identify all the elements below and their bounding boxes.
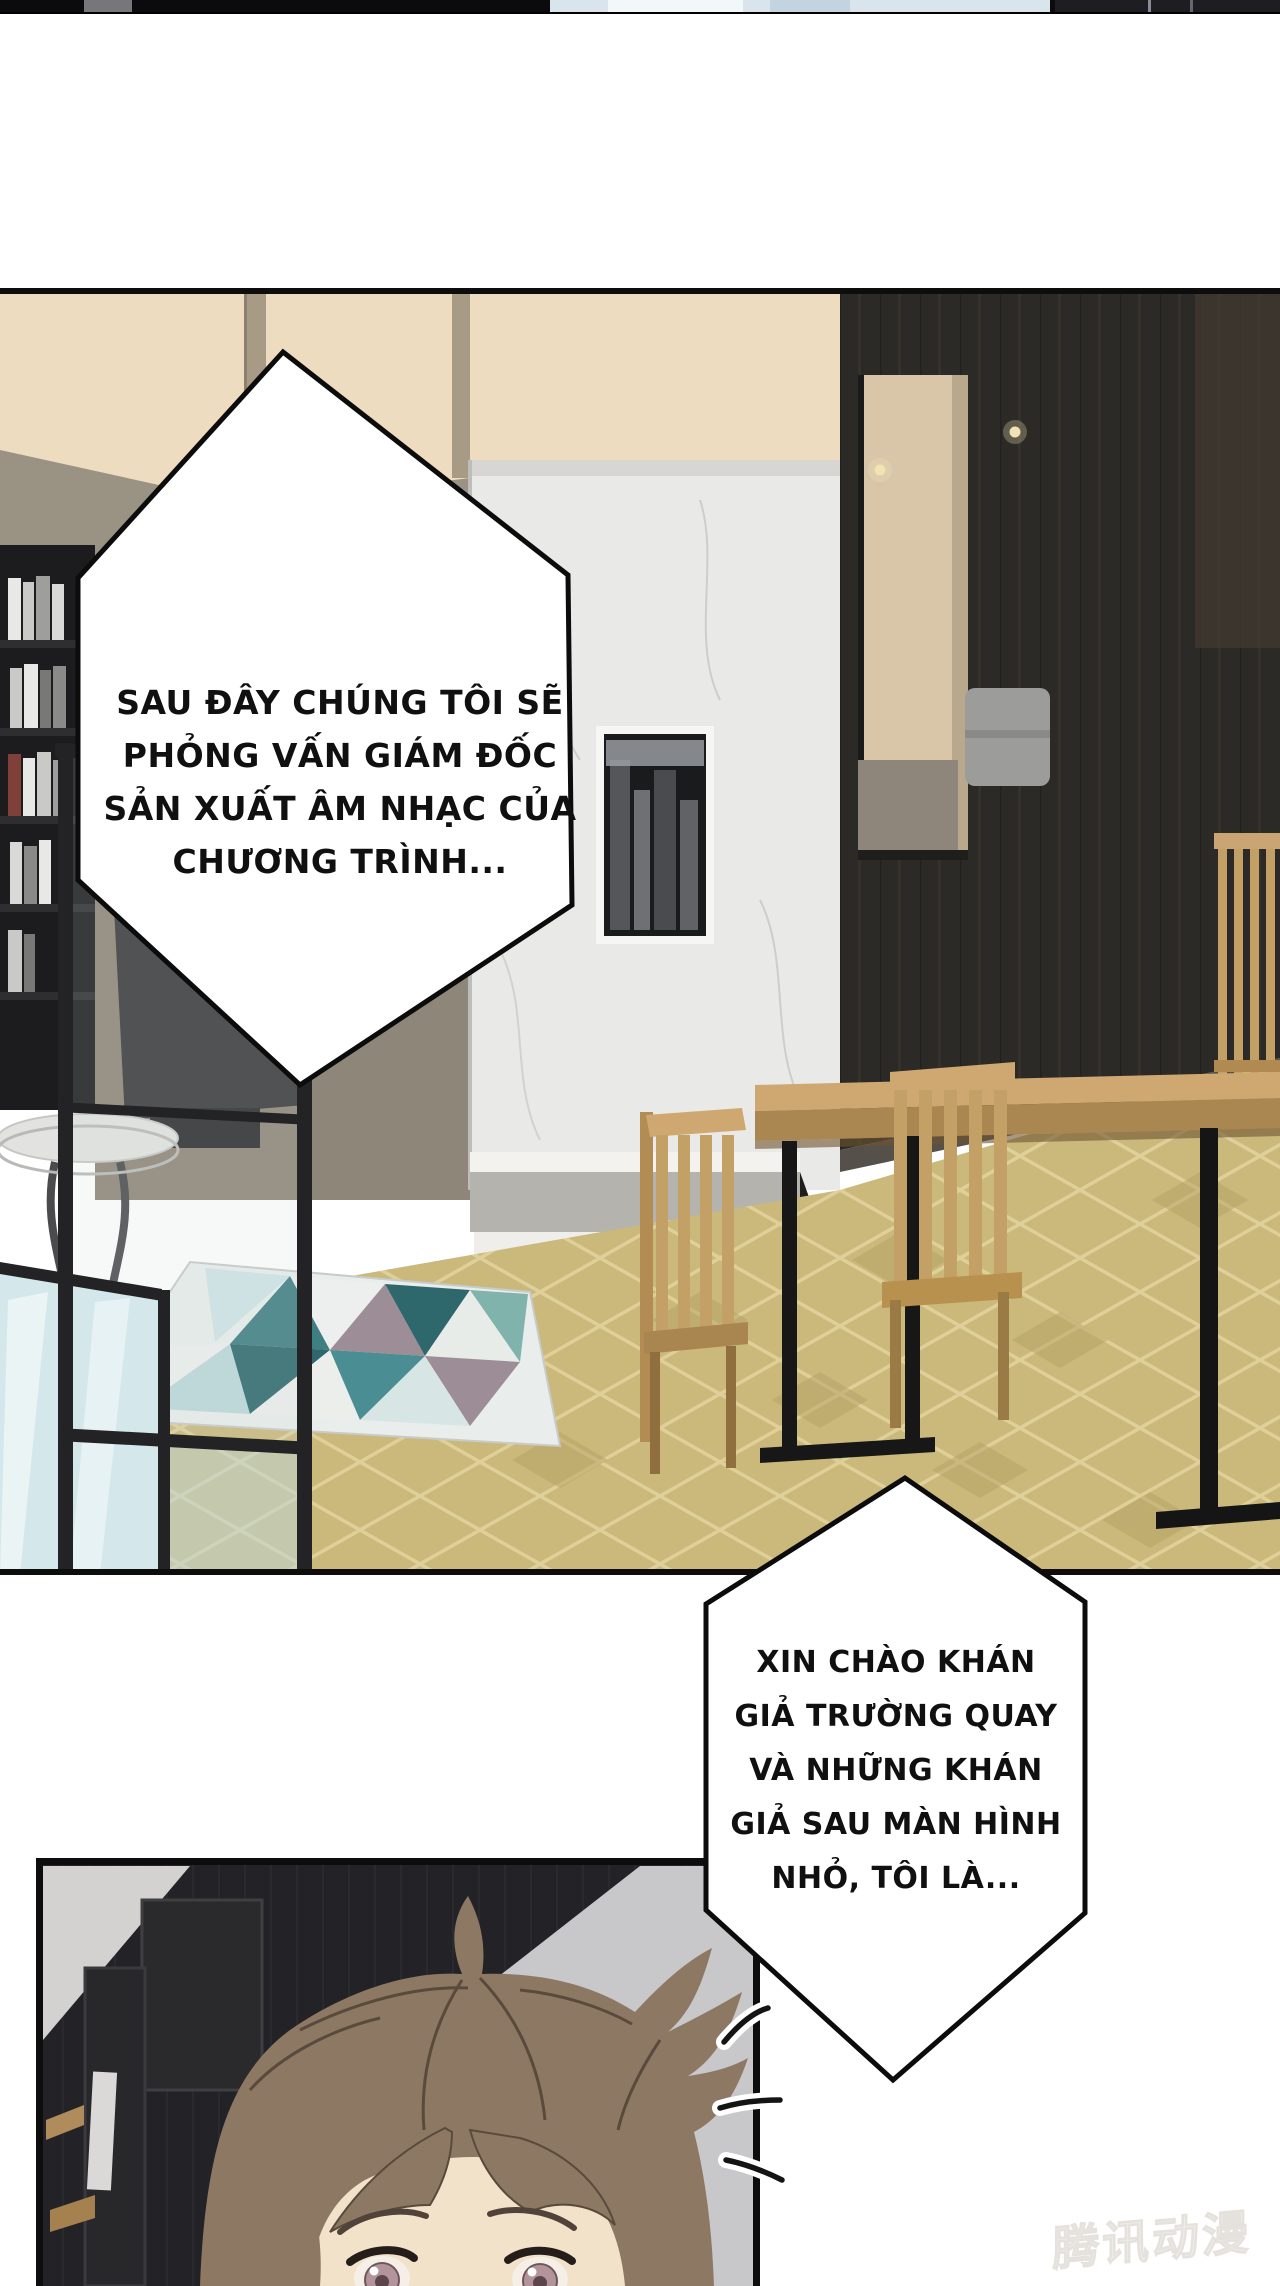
speech-line: GIẢ TRƯỜNG QUAY	[706, 1690, 1086, 1744]
sofa	[965, 688, 1050, 786]
previous-panel-fragment	[1148, 0, 1151, 12]
speech-line: NHỎ, TÔI LÀ...	[706, 1852, 1086, 1906]
tv	[596, 726, 714, 944]
speech-line: PHỎNG VẤN GIÁM ĐỐC	[100, 729, 580, 782]
panel-living-room	[0, 288, 1280, 1575]
speech-bubble-2-text: XIN CHÀO KHÁN GIẢ TRƯỜNG QUAY VÀ NHỮNG K…	[706, 1636, 1086, 1906]
previous-panel-fragment	[770, 0, 850, 12]
previous-panel-fragment	[1190, 0, 1193, 12]
doorway	[858, 375, 968, 860]
comic-page: SAU ĐÂY CHÚNG TÔI SẼ PHỎNG VẤN GIÁM ĐỐC …	[0, 0, 1280, 2286]
speech-line: SẢN XUẤT ÂM NHẠC CỦA	[100, 782, 580, 835]
speech-line: CHƯƠNG TRÌNH...	[100, 835, 580, 888]
speech-line: SAU ĐÂY CHÚNG TÔI SẼ	[100, 676, 580, 729]
speech-bubble-1-text: SAU ĐÂY CHÚNG TÔI SẼ PHỎNG VẤN GIÁM ĐỐC …	[100, 676, 580, 888]
door-frame	[142, 1900, 262, 2090]
previous-panel-fragment	[84, 0, 132, 12]
panel-border	[0, 288, 1280, 294]
speech-line: GIẢ SAU MÀN HÌNH	[706, 1798, 1086, 1852]
previous-panel-fragment	[608, 0, 743, 12]
panel-border	[0, 1569, 1280, 1575]
previous-panel-fragment	[1055, 0, 1280, 12]
speech-line: XIN CHÀO KHÁN	[706, 1636, 1086, 1690]
wood-batten	[452, 288, 470, 478]
speech-line: VÀ NHỮNG KHÁN	[706, 1744, 1086, 1798]
wood-batten	[246, 288, 266, 718]
previous-panel-edge	[0, 0, 1280, 14]
